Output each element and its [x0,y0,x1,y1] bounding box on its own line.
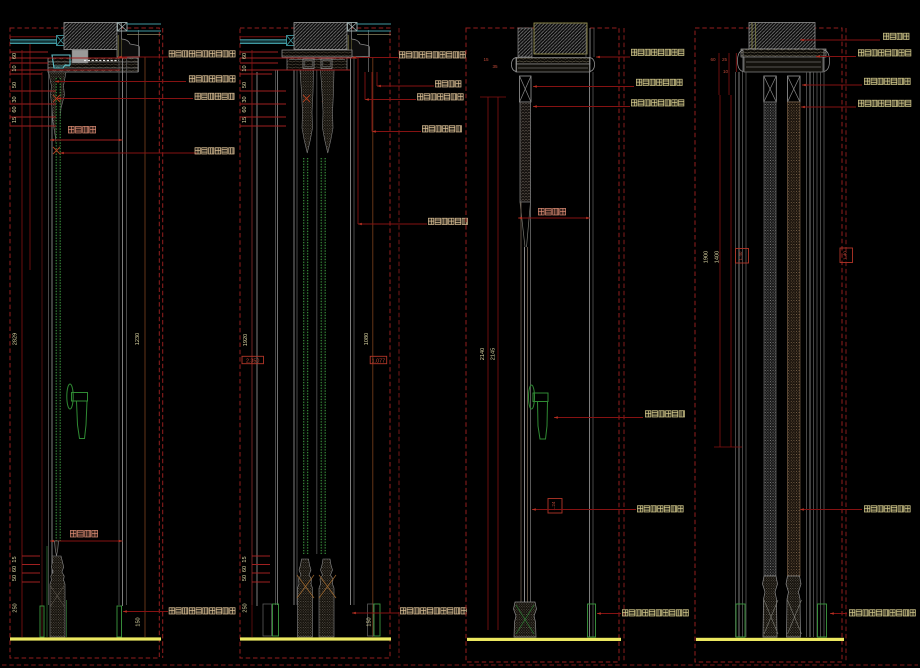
svg-text:10: 10 [242,65,248,71]
svg-text:1080: 1080 [364,333,370,345]
svg-text:250: 250 [243,603,249,612]
svg-text:1230: 1230 [135,333,141,345]
svg-text:60: 60 [12,106,18,112]
svg-text:30: 30 [12,96,18,102]
svg-text:250: 250 [13,603,19,612]
svg-text:1900: 1900 [704,251,710,263]
svg-text:10: 10 [723,69,729,74]
svg-text:1.077: 1.077 [372,358,386,364]
svg-text:1.40: 1.40 [738,251,743,260]
svg-text:15: 15 [12,117,18,123]
svg-text:15: 15 [242,117,248,123]
svg-text:15: 15 [12,556,18,562]
svg-text:1400: 1400 [715,251,721,263]
svg-text:30: 30 [242,96,248,102]
svg-text:1920: 1920 [243,334,249,346]
svg-text:10: 10 [12,65,18,71]
svg-text:1.40: 1.40 [842,251,847,260]
svg-text:60: 60 [242,106,248,112]
svg-text:50: 50 [242,575,248,581]
svg-text:60: 60 [12,53,18,59]
svg-text:2.350: 2.350 [246,358,260,364]
svg-text:50: 50 [12,575,18,581]
svg-text:150: 150 [136,617,142,626]
svg-text:15: 15 [483,57,489,62]
svg-text:60: 60 [242,566,248,572]
svg-text:150: 150 [367,617,373,626]
svg-text:15: 15 [242,556,248,562]
svg-text:2145: 2145 [491,348,497,360]
svg-text:25: 25 [722,57,728,62]
svg-text:50: 50 [12,82,18,88]
svg-text:2140: 2140 [480,348,486,360]
svg-text:50: 50 [242,82,248,88]
svg-text:35: 35 [492,64,498,69]
svg-text:60: 60 [242,53,248,59]
svg-text:2829: 2829 [13,333,19,345]
svg-text:60: 60 [710,57,716,62]
svg-text:60: 60 [12,566,18,572]
